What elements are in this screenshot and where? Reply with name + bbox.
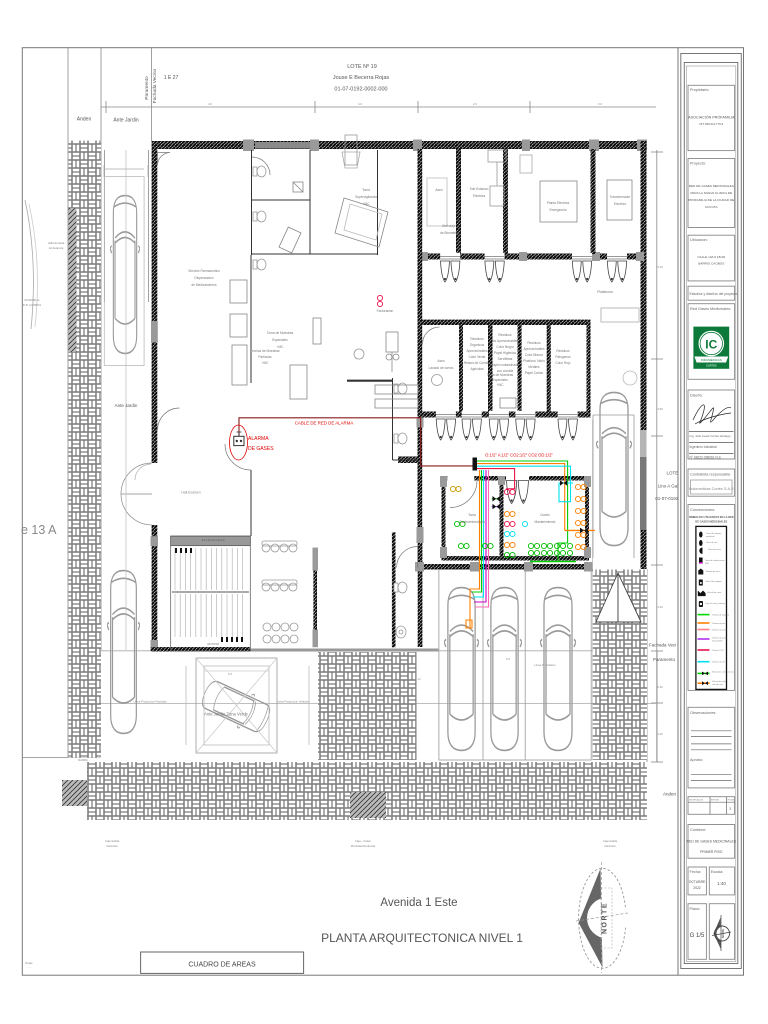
svg-text:R B. CAOBOS: R B. CAOBOS [23,303,41,307]
svg-text:Papel contaminado: Papel contaminado [491,363,519,367]
svg-text:Especiales: Especiales [272,338,288,342]
svg-text:Paramento: Paramento [144,76,150,100]
svg-text:Toma de oxido nitroso: Toma de oxido nitroso [705,559,725,562]
svg-text:Toma de Muestras: Toma de Muestras [487,373,514,377]
svg-text:N2O: N2O [705,563,710,565]
svg-text:Aprovechables: Aprovechables [523,347,544,351]
svg-text:Contratista responsable:: Contratista responsable: [690,473,731,477]
svg-text:Caja de corte y alarma: Caja de corte y alarma [705,602,726,605]
svg-text:de Biometria: de Biometria [440,231,458,235]
svg-text:Hall Examen: Hall Examen [181,491,200,495]
svg-text:PLANTA ARQUITECTONICA NIVEL 1: PLANTA ARQUITECTONICA NIVEL 1 [321,931,523,945]
svg-text:con tub. aire: con tub. aire [712,683,724,686]
svg-text:O:1/2" A:1/2" CO2:1/2" CO2 OD:: O:1/2" A:1/2" CO2:1/2" CO2 OD:1/2" [485,453,553,458]
svg-text:NORTE: NORTE [721,929,725,938]
svg-text:Linea Proyeccion Fachada: Linea Proyeccion Fachada [133,700,167,704]
svg-text:Residuos: Residuos [556,349,570,353]
svg-text:+MC: +MC [262,361,270,365]
svg-text:nitroso N2O: nitroso N2O [712,640,723,643]
svg-text:MODIFICACION: MODIFICACION [689,799,704,802]
svg-text:Movilidad Reducida: Movilidad Reducida [351,844,376,848]
svg-text:6.10: 6.10 [415,677,421,681]
svg-text:LOTE: LOTE [667,471,679,476]
svg-text:Observaciones:: Observaciones: [690,711,716,715]
svg-text:Tuberia CO2: Tuberia CO2 [712,650,724,652]
svg-text:Agricolas: Agricolas [470,367,484,371]
svg-text:Caja Salida: Caja Salida [603,839,618,843]
svg-text:Residuos: Residuos [498,333,512,337]
svg-text:CALLE 13A # 1B-09: CALLE 13A # 1B-09 [697,255,725,259]
svg-text:Toma: Toma [468,513,476,517]
svg-text:N° 68222-298061 N.S: N° 68222-298061 N.S [690,456,721,460]
svg-text:DE GASES MEDICINALES: DE GASES MEDICINALES [695,520,727,524]
svg-text:Aprobo:: Aprobo: [690,758,703,762]
svg-text:Patogenos: Patogenos [555,355,571,359]
svg-text:ASOCIACIÓN PROFAMILIA: ASOCIACIÓN PROFAMILIA [688,115,735,120]
svg-text:Gastroenterologia: Gastroenterologia [459,520,485,524]
svg-text:Especiales: Especiales [492,378,508,382]
svg-text:RED DE GASES MEDICINALES: RED DE GASES MEDICINALES [689,184,734,188]
svg-text:Lino A Gal: Lino A Gal [658,484,679,489]
svg-text:1 E 27: 1 E 27 [164,75,179,81]
svg-text:Plataforma: Plataforma [597,290,613,294]
svg-text:Color Verde: Color Verde [469,355,486,359]
svg-text:5.0: 5.0 [228,672,232,676]
svg-text:PRIMER PISO: PRIMER PISO [700,850,723,854]
svg-text:Transformador: Transformador [610,195,632,199]
svg-text:2.6: 2.6 [473,102,477,106]
svg-text:4.6: 4.6 [358,102,362,106]
svg-text:Fachada Veci: Fachada Veci [649,643,676,648]
svg-text:Color Negro: Color Negro [496,345,513,349]
svg-text:1.40: 1.40 [657,732,663,736]
svg-text:4.6 3.6 5.8: 4.6 3.6 5.8 [207,643,219,646]
svg-text:Valvula de corte: Valvula de corte [712,680,727,683]
svg-text:Plano:: Plano: [690,907,701,911]
svg-text:Mantenimiento: Mantenimiento [535,520,556,524]
svg-text:Sub Estacion: Sub Estacion [470,187,489,191]
svg-text:Toma: Toma [362,188,370,192]
svg-text:Indumedicas Cortes S.A.S: Indumedicas Cortes S.A.S [689,487,734,491]
svg-text:Paramento: Paramento [653,657,676,662]
svg-text:5.0: 5.0 [506,657,510,661]
svg-text:CABLE DE RED DE ALARMA: CABLE DE RED DE ALARMA [295,421,354,426]
svg-text:RED DE GASES MEDICINALES: RED DE GASES MEDICINALES [687,840,737,844]
svg-text:Vehicular: Vehicular [106,844,118,848]
svg-text:e 13 A: e 13 A [21,523,57,537]
svg-text:Valvula de corte con tub.: Valvula de corte con tub. [712,670,734,673]
svg-text:No Aprovechables: No Aprovechables [492,339,518,343]
svg-text:Proyecto:: Proyecto: [690,162,706,166]
svg-text:1:40: 1:40 [717,881,726,886]
svg-text:Central de oxigeno: Central de oxigeno [705,580,723,583]
svg-text:Residuos: Residuos [527,341,541,345]
svg-text:Cuarto: Cuarto [540,513,550,517]
svg-text:Contiene:: Contiene: [690,828,706,832]
svg-text:Electrica: Electrica [473,194,485,198]
svg-text:INDUMEDICAS: INDUMEDICAS [701,358,722,362]
svg-text:Papel Higienico: Papel Higienico [494,351,516,355]
svg-text:Anden: Anden [663,792,677,797]
svg-text:Vehicular: Vehicular [604,844,616,848]
svg-text:Bomba de vacio: Bomba de vacio [706,571,721,573]
svg-text:de Medicamentos: de Medicamentos [191,283,217,287]
svg-text:Valvula de corte: Valvula de corte [707,591,722,594]
svg-text:Papel Carton: Papel Carton [525,371,544,375]
svg-text:Tuberia de vacio: Tuberia de vacio [712,630,728,632]
svg-text:IC: IC [705,338,717,352]
svg-text:Planta Electrica: Planta Electrica [547,201,569,205]
svg-text:Toma de Muestras: Toma de Muestras [267,331,294,335]
svg-text:Propietario:: Propietario: [690,88,709,92]
svg-text:Aseo: Aseo [437,359,444,363]
svg-text:2.40: 2.40 [657,685,663,689]
svg-text:Embalaje: Embalaje [442,224,456,228]
svg-text:Tuberia de oxigeno: Tuberia de oxigeno [712,615,730,617]
svg-text:Convenciones:: Convenciones: [690,508,715,512]
svg-text:NIT: 860.013.779-9: NIT: 860.013.779-9 [699,122,723,126]
svg-text:DE GASES: DE GASES [248,446,274,452]
svg-text:Servilletas: Servilletas [498,357,513,361]
svg-text:+MC: +MC [363,202,371,206]
svg-text:Servicio Farmaceutico: Servicio Farmaceutico [188,269,220,273]
svg-text:3.0: 3.0 [598,102,602,106]
svg-text:Aseo: Aseo [435,188,442,192]
svg-text:NORTE: NORTE [602,902,609,934]
svg-text:Color Rojo: Color Rojo [555,361,570,365]
svg-text:PARA LA NUEVA CLINICA DE: PARA LA NUEVA CLINICA DE [690,191,732,195]
svg-text:Fecha:: Fecha: [690,870,702,874]
svg-text:Electrico: Electrico [614,202,626,206]
svg-text:Diseño:: Diseño: [690,394,703,398]
svg-text:Toma de aire: Toma de aire [706,542,718,544]
svg-text:4.60: 4.60 [657,407,663,411]
svg-text:medicinal: medicinal [706,536,715,538]
svg-text:Ubicacion:: Ubicacion: [690,238,708,242]
svg-text:BARRIO CAOBOS: BARRIO CAOBOS [698,262,724,266]
svg-text:2022: 2022 [693,886,701,890]
svg-text:Fachada Vecino: Fachada Vecino [152,68,158,103]
svg-text:CUADRO DE AREAS: CUADRO DE AREAS [188,962,256,969]
svg-text:G 1/5: G 1/5 [690,933,705,939]
svg-text:RAMPA: RAMPA [78,758,88,762]
svg-text:Particular: Particular [258,355,272,359]
svg-text:Supervigilancia: Supervigilancia [355,195,377,199]
svg-text:Toma de vacio: Toma de vacio [708,549,722,551]
svg-text:+MC: +MC [497,383,505,387]
svg-text:4.6 3.10 4.6 4.10 4.6: 4.6 3.10 4.6 4.10 4.6 [202,539,226,542]
svg-text:Plasticos Vidrio: Plasticos Vidrio [523,359,545,363]
svg-text:LOTE Nº 19: LOTE Nº 19 [347,63,377,70]
svg-text:Organicos: Organicos [470,343,485,347]
svg-text:01-07-0192-0002-000: 01-07-0192-0002-000 [334,87,387,93]
svg-text:APROBO: APROBO [711,799,720,802]
svg-text:Restos de Comida: Restos de Comida [464,361,490,365]
svg-text:Avenida 1 Este: Avenida 1 Este [380,897,457,909]
svg-text:.....: ..... [27,965,31,969]
svg-text:PROFAMILIA DE LA CIUDAD DE: PROFAMILIA DE LA CIUDAD DE [688,198,734,202]
svg-text:Caja - Anden: Caja - Anden [355,839,372,843]
svg-text:Valla Entrada: Valla Entrada [48,241,65,245]
svg-text:Toma de oxigeno: Toma de oxigeno [706,533,722,535]
svg-text:FECHA: FECHA [728,799,735,802]
svg-text:Caja Salida: Caja Salida [105,839,120,843]
svg-text:5.10: 5.10 [657,265,663,269]
svg-text:Jouse E Becerra Rojas: Jouse E Becerra Rojas [333,75,389,81]
svg-text:Linea P. Voladizo: Linea P. Voladizo [534,663,556,667]
svg-text:Aprovechables: Aprovechables [466,349,487,353]
svg-text:Tuberia de oxido: Tuberia de oxido [712,638,728,640]
svg-text:Facturacion: Facturacion [377,309,394,313]
svg-text:4.40: 4.40 [657,605,663,609]
svg-text:Emergencia: Emergencia [549,208,566,212]
svg-text:Color Blanco: Color Blanco [525,353,543,357]
svg-text:Anden: Anden [77,117,92,123]
svg-text:ROFAMILIA: ROFAMILIA [25,298,40,302]
svg-text:SIMBOLOS UTILIZADOS EN LA RED: SIMBOLOS UTILIZADOS EN LA RED [689,515,734,519]
svg-text:Tuberia de CO: Tuberia de CO [712,662,725,664]
svg-text:Ing. Julio Cesar Cortes Verdug: Ing. Julio Cesar Cortes Verdugo [690,434,731,438]
svg-text:Estudios y diseños del proyect: Estudios y diseños del proyecto: [690,292,739,296]
svg-text:OCTUBRE: OCTUBRE [689,880,706,884]
svg-text:Ante Jardin: Ante Jardin [113,118,139,124]
svg-text:Metales: Metales [528,365,540,369]
svg-text:CORTES: CORTES [706,364,717,368]
svg-text:Linea Proyeccion Voladizo: Linea Proyeccion Voladizo [277,700,310,704]
svg-text:Lavado de carros: Lavado de carros [429,366,454,370]
svg-text:ALARMA: ALARMA [248,436,269,442]
svg-text:Ante Jardin Zona Verde: Ante Jardin Zona Verde [204,712,249,717]
svg-text:Residuos: Residuos [470,337,484,341]
svg-text:CUCUTA: CUCUTA [705,205,719,209]
svg-text:Dispensacion: Dispensacion [194,276,213,280]
svg-text:Ambulancia: Ambulancia [49,246,64,250]
svg-text:Escala:: Escala: [711,870,723,874]
svg-text:Red Gases Medicinales:: Red Gases Medicinales: [690,307,731,311]
svg-text:Tecnica de Muestras: Tecnica de Muestras [250,349,280,353]
svg-text:Tuberia de aire: Tuberia de aire [712,623,726,625]
svg-text:Ingeniero Industrial: Ingeniero Industrial [690,445,717,449]
svg-text:4.6: 4.6 [208,102,212,106]
svg-text:01-07-0192: 01-07-0192 [655,496,679,501]
svg-text:Ante Jardin: Ante Jardin [115,403,138,408]
